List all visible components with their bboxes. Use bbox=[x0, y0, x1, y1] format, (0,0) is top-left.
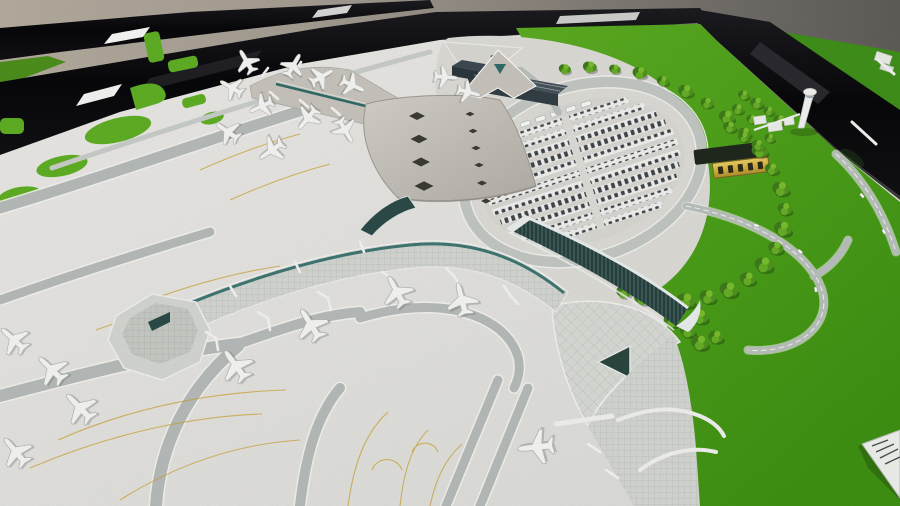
texture-overlay bbox=[0, 0, 900, 506]
scene-svg bbox=[0, 0, 900, 506]
airport-model-photo bbox=[0, 0, 900, 506]
